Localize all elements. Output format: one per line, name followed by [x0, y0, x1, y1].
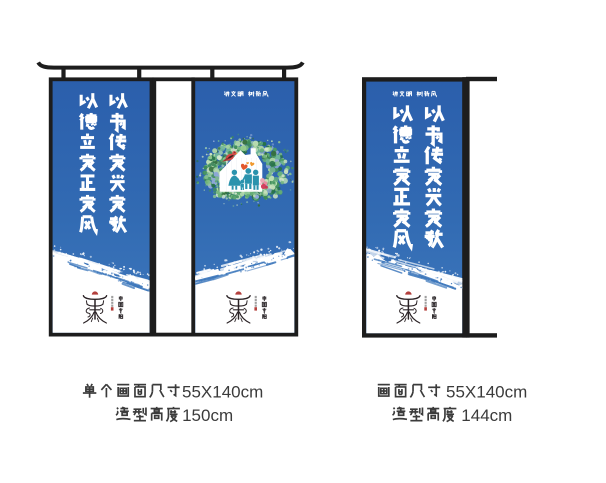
svg-text:144cm: 144cm: [461, 406, 512, 425]
svg-text:55X140cm: 55X140cm: [446, 382, 527, 401]
svg-text:55X140cm: 55X140cm: [182, 382, 263, 401]
svg-text:150cm: 150cm: [182, 406, 233, 425]
